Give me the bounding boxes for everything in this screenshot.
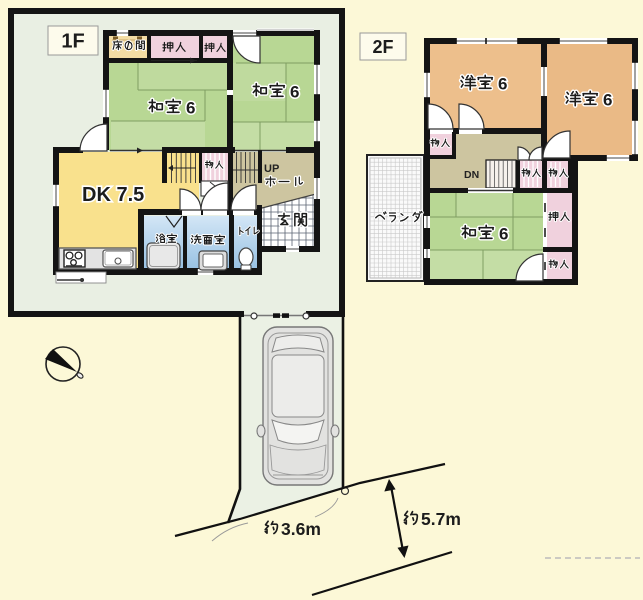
svg-text:6: 6 — [499, 225, 508, 244]
svg-text:2F: 2F — [372, 37, 393, 57]
svg-text:DK 7.5: DK 7.5 — [82, 184, 144, 206]
svg-text:6: 6 — [290, 83, 299, 102]
svg-text:3.6m: 3.6m — [281, 519, 321, 539]
svg-text:DN: DN — [464, 169, 479, 181]
svg-text:5.7m: 5.7m — [421, 509, 461, 529]
svg-text:1F: 1F — [61, 31, 84, 53]
svg-text:6: 6 — [498, 75, 507, 94]
svg-text:6: 6 — [186, 99, 195, 118]
svg-text:6: 6 — [603, 91, 612, 110]
svg-text:UP: UP — [264, 163, 279, 175]
